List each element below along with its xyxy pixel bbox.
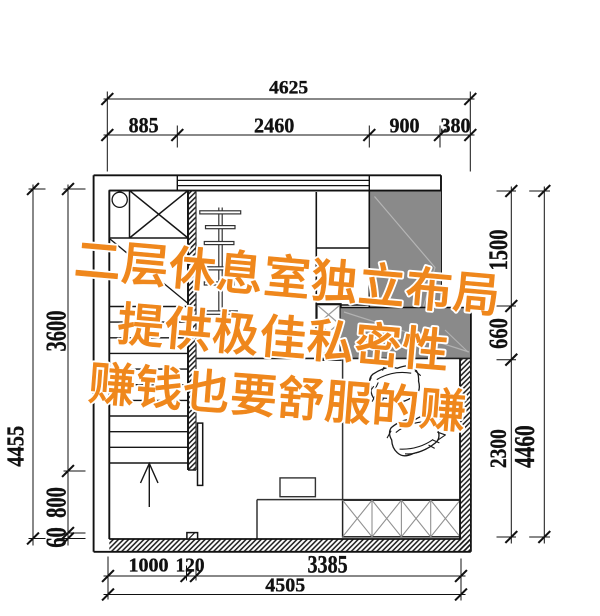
- svg-text:800: 800: [42, 487, 73, 518]
- svg-text:1500: 1500: [484, 230, 513, 271]
- svg-text:1000: 1000: [129, 554, 169, 576]
- svg-text:660: 660: [484, 318, 513, 349]
- svg-text:3385: 3385: [307, 552, 347, 579]
- svg-text:2460: 2460: [254, 113, 294, 137]
- svg-text:2300: 2300: [486, 429, 512, 468]
- svg-text:120: 120: [176, 554, 205, 576]
- svg-text:900: 900: [390, 113, 420, 137]
- svg-text:60: 60: [42, 527, 73, 548]
- svg-text:4625: 4625: [269, 79, 308, 99]
- svg-text:380: 380: [441, 113, 471, 137]
- svg-text:3600: 3600: [42, 311, 73, 352]
- svg-text:4460: 4460: [510, 425, 541, 468]
- svg-text:4505: 4505: [265, 574, 305, 596]
- svg-text:885: 885: [129, 112, 159, 137]
- svg-text:4455: 4455: [3, 426, 29, 467]
